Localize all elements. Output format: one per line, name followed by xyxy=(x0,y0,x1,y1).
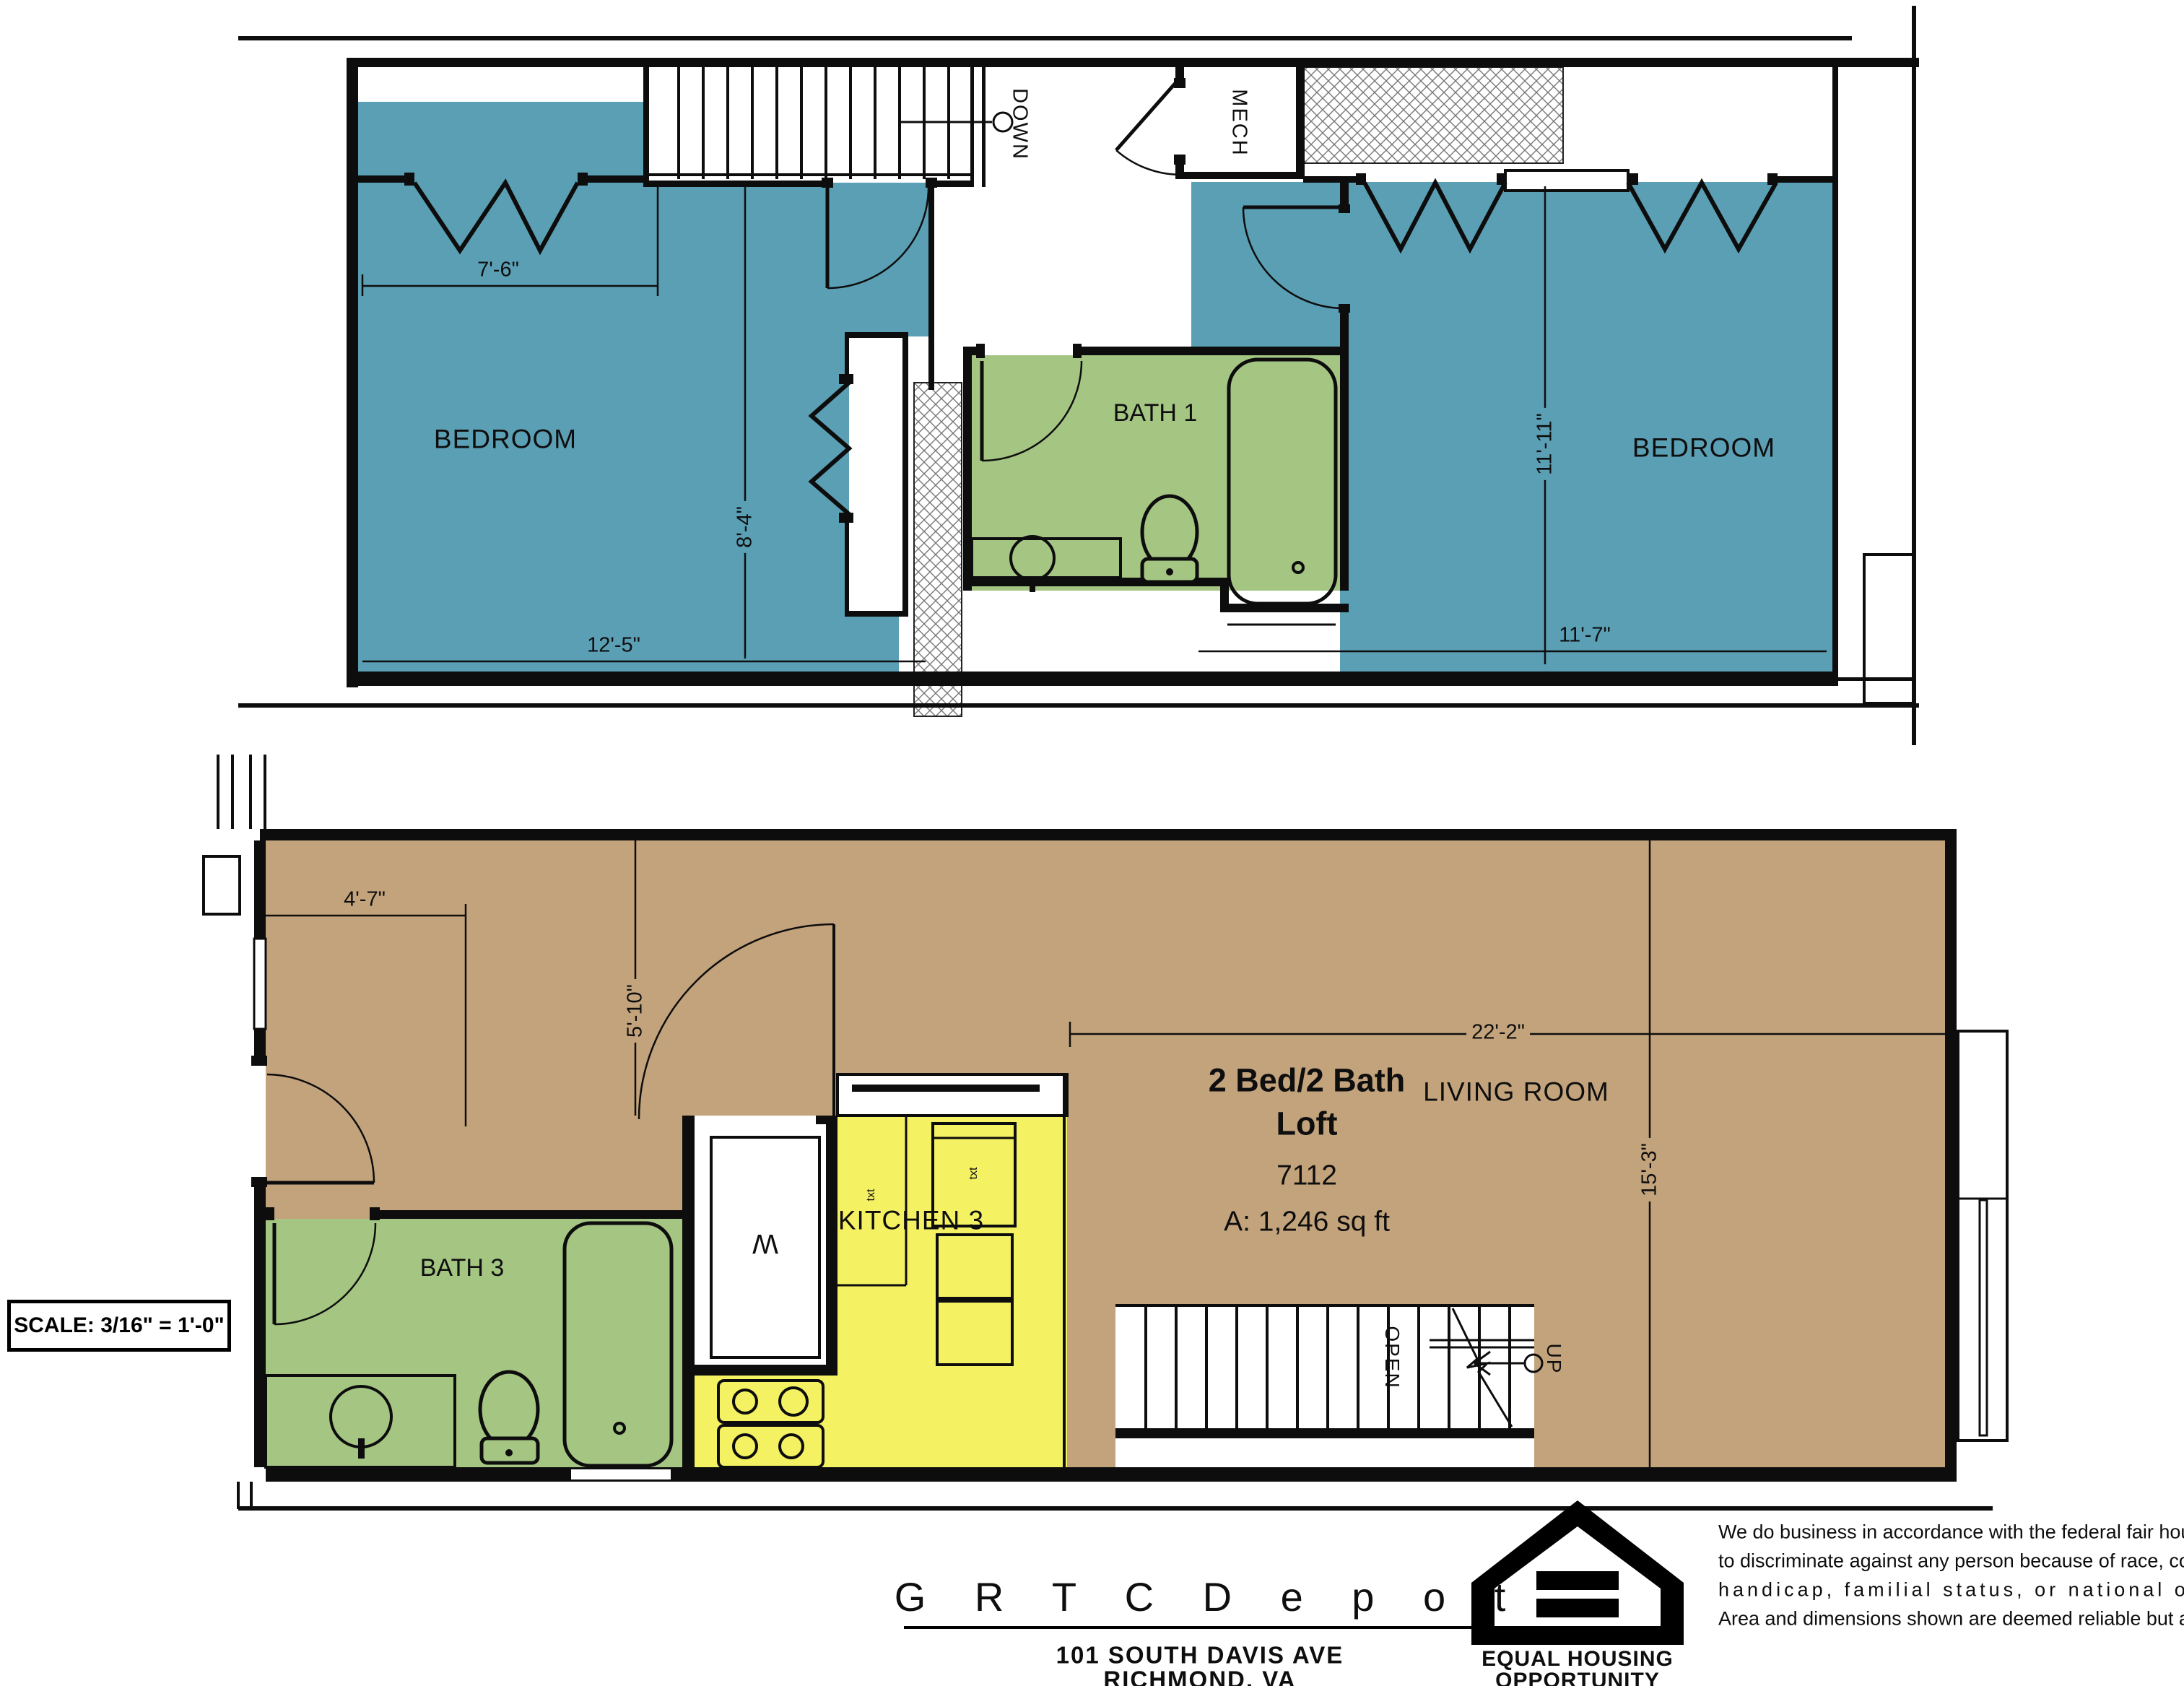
scale-note: SCALE: 3/16" = 1'-0" xyxy=(14,1313,225,1338)
dim-laundry: 5'-10" xyxy=(625,979,647,1043)
eho-title: EQUAL HOUSING xyxy=(1482,1648,1674,1670)
closet-header xyxy=(1505,170,1628,191)
project-title: G R T C D e p o t xyxy=(895,1577,1525,1617)
dim-entry: 4'-7" xyxy=(339,889,391,911)
lower-floor-plan xyxy=(204,755,2007,1511)
disclaimer-line1: We do business in accordance with the fe… xyxy=(1718,1521,2184,1544)
bedroom-left-label: BEDROOM xyxy=(434,426,577,453)
eho-subtitle: OPPORTUNITY xyxy=(1495,1670,1660,1686)
dim-bedroom-right-height: 11'-11" xyxy=(1534,408,1557,480)
project-address: 101 SOUTH DAVIS AVE xyxy=(1056,1643,1344,1667)
dim-living-width: 22'-2" xyxy=(1466,1022,1530,1044)
title-underline xyxy=(904,1626,1499,1629)
washer-label: W xyxy=(752,1230,778,1257)
disclaimer-line3: handicap, familial status, or national o… xyxy=(1718,1579,2184,1602)
bedroom-right-label: BEDROOM xyxy=(1632,435,1775,461)
living-room-label: LIVING ROOM xyxy=(1423,1079,1609,1105)
hatch-chase-top xyxy=(1303,67,1563,163)
equal-housing-logo xyxy=(1471,1500,1684,1645)
open-label: OPEN xyxy=(1382,1326,1402,1389)
dim-bedroom-right-width: 11'-7" xyxy=(1554,625,1616,647)
unit-number: 7112 xyxy=(1276,1162,1337,1190)
unit-area: A: 1,246 sq ft xyxy=(1224,1208,1390,1236)
disclaimer-line2: to discriminate against any person becau… xyxy=(1718,1550,2184,1573)
cabinet-note: txt xyxy=(968,1168,980,1180)
dim-closet: 7'-6" xyxy=(472,259,524,282)
entry-alcove xyxy=(204,856,240,914)
mech-label: MECH xyxy=(1229,89,1250,156)
floor-plan-sheet: BEDROOM BEDROOM BATH 1 MECH DOWN 7'-6" 1… xyxy=(0,0,2184,1686)
dim-bedroom-left-width: 12'-5" xyxy=(582,635,645,657)
bath1-label: BATH 1 xyxy=(1113,401,1198,425)
dim-bedroom-left-height: 8'-4" xyxy=(734,501,757,553)
kitchen-sink-counter xyxy=(838,1074,1067,1116)
unit-title-line1: 2 Bed/2 Bath xyxy=(1209,1064,1406,1097)
window xyxy=(254,939,266,1029)
up-label: UP xyxy=(1544,1344,1564,1375)
unit-title-line2: Loft xyxy=(1276,1108,1338,1140)
project-city: RICHMOND, VA xyxy=(1103,1668,1296,1686)
window xyxy=(570,1469,671,1480)
counter-note: txt xyxy=(866,1189,877,1202)
mech-door xyxy=(1116,77,1181,150)
scale-note-box: SCALE: 3/16" = 1'-0" xyxy=(7,1300,231,1352)
kitchen-label: KITCHEN 3 xyxy=(838,1207,984,1234)
bath3-label: BATH 3 xyxy=(420,1256,505,1280)
kitchen-floor-b xyxy=(838,1116,1067,1467)
hatch-chase-mid xyxy=(914,383,962,716)
disclaimer-line4: Area and dimensions shown are deemed rel… xyxy=(1718,1608,2184,1630)
dim-living-height: 15'-3" xyxy=(1639,1138,1661,1202)
bedroom-left-entry-nook xyxy=(849,182,928,336)
bay-window xyxy=(1958,1031,2007,1441)
bath1-floor xyxy=(972,355,1340,591)
down-label: DOWN xyxy=(1009,88,1030,160)
upper-floor-plan xyxy=(238,6,1919,745)
plan-drawing xyxy=(0,0,2184,1686)
bedroom-left-floor xyxy=(358,102,849,673)
